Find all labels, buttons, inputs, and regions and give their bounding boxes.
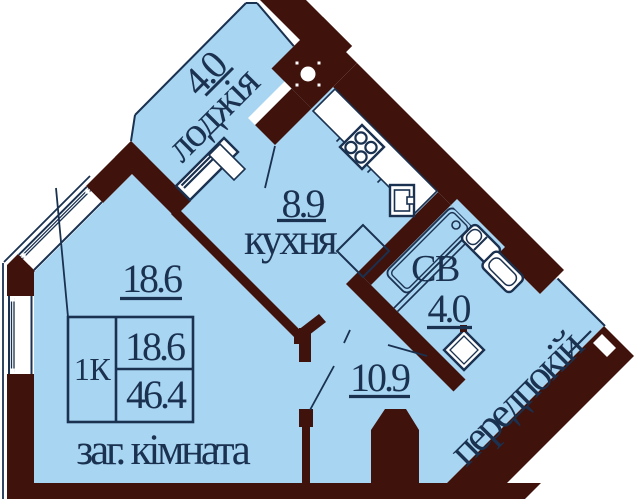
svg-text:СВ: СВ	[411, 248, 459, 290]
svg-text:4.0: 4.0	[428, 286, 471, 331]
svg-text:10.9: 10.9	[350, 355, 410, 400]
svg-text:18.6: 18.6	[122, 256, 182, 301]
svg-text:заг. кімната: заг. кімната	[76, 427, 251, 474]
svg-text:1К: 1К	[74, 351, 112, 387]
svg-text:46.4: 46.4	[126, 372, 187, 417]
svg-text:18.6: 18.6	[125, 324, 185, 369]
svg-text:кухня: кухня	[244, 215, 338, 264]
